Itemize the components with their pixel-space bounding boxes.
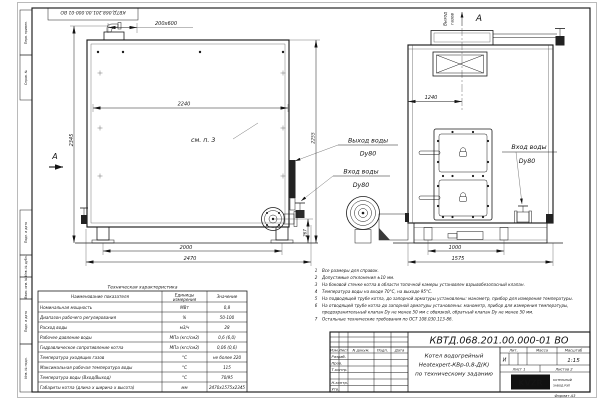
- base-frame: [414, 223, 547, 243]
- dim-267: 267: [303, 229, 308, 237]
- tb-sheet: Лист 1: [512, 367, 526, 371]
- tb-header-list: Лист: [338, 349, 349, 353]
- lifting-lugs: [97, 51, 284, 53]
- svg-text:Расход воды: Расход воды: [40, 325, 68, 330]
- note-text: предохранительный клапан Dу не менее 50 …: [322, 310, 534, 315]
- svg-text:°С: °С: [182, 365, 187, 370]
- note-text: Допустимые отклонения ±10 мм.: [321, 275, 394, 280]
- margin-label: Подп. и дата: [24, 222, 28, 243]
- note-text: Температура воды на входе 70°С, на выход…: [322, 289, 432, 294]
- see-note-ref: см. п. 3: [191, 137, 215, 144]
- tb-header-podp: Подп.: [377, 349, 388, 353]
- notes-list: 1 Все размеры для справок. 2 Допустимые …: [315, 268, 573, 322]
- tb-sheets: Листов 2: [554, 367, 573, 371]
- tb-header-data: Дата: [394, 349, 405, 353]
- front-water-in-label: Вход воды: [511, 144, 546, 151]
- tb-name-line2: Heatexpert-КВр-0,8-Д(К): [419, 363, 490, 369]
- water-out-dn: Dу80: [360, 151, 377, 158]
- spec-row: Рабочее давление воды МПа (кгс/см2) 0,6 …: [40, 335, 236, 340]
- note-text: На боковой стенке котла в области топочн…: [322, 282, 525, 287]
- svg-text:2470х1575х2345: 2470х1575х2345: [209, 385, 245, 390]
- tb-name-line1: Котел водогрейный: [425, 354, 484, 360]
- svg-text:0,06 (0,6): 0,06 (0,6): [217, 345, 238, 350]
- tb-header-ndoc: N докум.: [352, 349, 369, 353]
- dim-2000: 2000: [180, 245, 193, 251]
- tb-masshtab-header: Масштаб: [565, 349, 583, 353]
- svg-text:Габариты котла (длина х ширина: Габариты котла (длина х ширина х высота): [40, 385, 135, 390]
- tb-role-prov: Пров.: [332, 361, 343, 365]
- tb-lit-header: Лит.: [508, 349, 518, 353]
- tb-massa-header: Масса: [536, 349, 548, 353]
- gas-out-label: Выход: [443, 12, 448, 26]
- spec-table-title: Техническая характеристика: [108, 285, 178, 291]
- top-nozzle: [104, 23, 124, 41]
- title-block: КВТД.068.201.00.000-01 ВО Изм. Лист N до…: [330, 332, 590, 398]
- margin-label: Справ. №: [24, 70, 28, 85]
- logo-text: KVZR: [518, 379, 542, 388]
- dim-1240: 1240: [425, 95, 438, 101]
- corner-stamp: КВТД.068.201.00.000-01 ВО: [48, 8, 138, 20]
- tb-lit-value: И: [503, 358, 507, 364]
- svg-text:не более 220: не более 220: [213, 355, 242, 360]
- tb-header-izm: Изм.: [330, 349, 339, 353]
- spec-header-name: Наименование показателя: [71, 294, 129, 299]
- svg-text:50-100: 50-100: [220, 315, 235, 320]
- spec-row: Температура уходящих газов °С не более 2…: [40, 355, 242, 360]
- note-text: Все размеры для справок.: [322, 268, 379, 273]
- svg-text:Максимальная рабочая температу: Максимальная рабочая температура воды: [40, 365, 133, 370]
- spec-row: Номинальная мощность МВт 0,8: [40, 305, 231, 310]
- note-number: 1: [315, 268, 318, 273]
- view-a-label: А: [51, 152, 57, 161]
- tb-role-tkontr: Т.контр.: [332, 368, 348, 372]
- margin-label: Взам. инв. №: [24, 277, 28, 298]
- front-water-in-dn: Dу80: [519, 158, 536, 165]
- dim-2345: 2345: [69, 134, 75, 147]
- svg-text:м3/ч: м3/ч: [180, 325, 190, 330]
- svg-text:Гидравлическое сопротивление к: Гидравлическое сопротивление котла: [40, 345, 124, 350]
- view-a-title: А: [475, 14, 482, 24]
- svg-text:Температура уходящих газов: Температура уходящих газов: [40, 355, 105, 360]
- format-label: Формат А3: [554, 394, 576, 398]
- water-in-dn: Dу80: [353, 182, 370, 189]
- side-view: [75, 23, 318, 244]
- dim-1000: 1000: [449, 245, 462, 251]
- logo-subtext2: ЗАВОД РЭП: [553, 384, 570, 388]
- spec-row: Диапазон рабочего регулирования % 50-100: [39, 315, 235, 320]
- svg-text:Диапазон рабочего регулировани: Диапазон рабочего регулирования: [39, 315, 117, 320]
- dim-1575: 1575: [452, 256, 465, 262]
- gas-out-label2: газов: [450, 13, 455, 25]
- tb-role-utv: Утв.: [332, 387, 340, 391]
- note-text: На отводящей трубе котла до запорной арм…: [322, 303, 569, 308]
- svg-text:Рабочее давление воды: Рабочее давление воды: [40, 335, 93, 340]
- svg-text:%: %: [183, 315, 187, 320]
- note-number: 3: [315, 282, 318, 287]
- side-view-dimensions: 200х600 2240 см. п. 3 А 2345 2000 2470 2…: [49, 21, 320, 266]
- svg-text:°С: °С: [182, 375, 187, 380]
- dim-nozzle: 200х600: [155, 21, 177, 27]
- dim-2240: 2240: [178, 102, 191, 108]
- water-out-label: Выход воды: [348, 138, 388, 145]
- margin-label: Инв. № подл.: [24, 357, 28, 378]
- note-number: 6: [315, 303, 318, 308]
- spec-header-value: Значение: [217, 294, 238, 299]
- vent-valve-icon: [493, 29, 565, 46]
- explosion-hatch: [433, 52, 487, 76]
- spec-row: Гидравлическое сопротивление котла МПа (…: [40, 345, 237, 350]
- svg-text:0,6 (6,0): 0,6 (6,0): [218, 335, 236, 340]
- doc-number: КВТД.068.201.00.000-01 ВО: [430, 336, 569, 347]
- front-view-dimensions: 1240 1000 1575: [408, 95, 553, 266]
- svg-text:МПа (кгс/см2): МПа (кгс/см2): [170, 345, 200, 350]
- rear-pipes: [289, 160, 305, 218]
- pipe-labels: Выход воды Dу80 Вход воды Dу80: [295, 138, 398, 202]
- dim-2470: 2470: [184, 256, 197, 262]
- margin-column: Перв. примен. Справ. № Подп. и дата Инв.…: [20, 10, 32, 392]
- svg-text:МВт: МВт: [180, 305, 189, 310]
- svg-text:Температура воды (Вход/Выход): Температура воды (Вход/Выход): [40, 375, 111, 380]
- company-logo: KVZR КОТЕЛЬНЫЙ ЗАВОД РЭП: [511, 375, 572, 390]
- margin-label: Перв. примен.: [24, 21, 28, 44]
- panel-marks: [98, 71, 286, 179]
- spec-row: Температура воды (Вход/Выход) °С 70/95: [40, 375, 233, 380]
- door-handle-icon: [419, 148, 467, 202]
- note-text: На подводящей трубе котла, до запорной а…: [322, 296, 573, 301]
- svg-text:Номинальная мощность: Номинальная мощность: [40, 305, 93, 310]
- note-number: 2: [315, 275, 318, 280]
- svg-text:28: 28: [224, 325, 230, 330]
- drawing-sheet: Перв. примен. Справ. № Подп. и дата Инв.…: [0, 0, 600, 400]
- margin-label: Подп. и дата: [24, 311, 28, 332]
- tb-name-line3: по техническому заданию: [415, 372, 493, 378]
- spec-row: Габариты котла (длина х ширина х высота)…: [40, 385, 245, 390]
- spec-header-units2: измерения: [173, 297, 197, 302]
- logo-subtext: КОТЕЛЬНЫЙ: [553, 377, 572, 382]
- corner-doc-number: КВТД.068.201.00.000-01 ВО: [60, 9, 126, 15]
- note-number: 7: [315, 317, 318, 322]
- note-text: Остальные технические требования по ОСТ …: [322, 317, 453, 322]
- svg-text:0,8: 0,8: [224, 305, 231, 310]
- note-number: 5: [315, 296, 318, 301]
- tb-role-razrab: Разраб.: [332, 355, 347, 359]
- svg-text:МПа (кгс/см2): МПа (кгс/см2): [170, 335, 200, 340]
- tb-scale: 1:15: [567, 358, 580, 364]
- note-number: 4: [315, 289, 318, 294]
- svg-text:мм: мм: [181, 385, 187, 390]
- water-in-label: Вход воды: [343, 169, 378, 176]
- spec-table: Техническая характеристика Наименование …: [38, 285, 247, 393]
- front-view: Выход газов А: [347, 12, 566, 243]
- burner-fan: [347, 197, 409, 244]
- svg-text:70/95: 70/95: [221, 375, 233, 380]
- tb-role-nkontr: Н.контр.: [332, 381, 349, 385]
- svg-text:115: 115: [223, 365, 231, 370]
- svg-text:°С: °С: [182, 355, 187, 360]
- spec-row: Расход воды м3/ч 28: [40, 325, 230, 330]
- inlet-valve-icon: [515, 206, 532, 223]
- dim-2255: 2255: [311, 132, 317, 144]
- furnace-doors: [419, 129, 492, 220]
- door-bolts: [437, 131, 489, 218]
- spec-row: Максимальная рабочая температура воды °С…: [40, 365, 231, 370]
- margin-label: Инв. № дубл.: [24, 255, 28, 276]
